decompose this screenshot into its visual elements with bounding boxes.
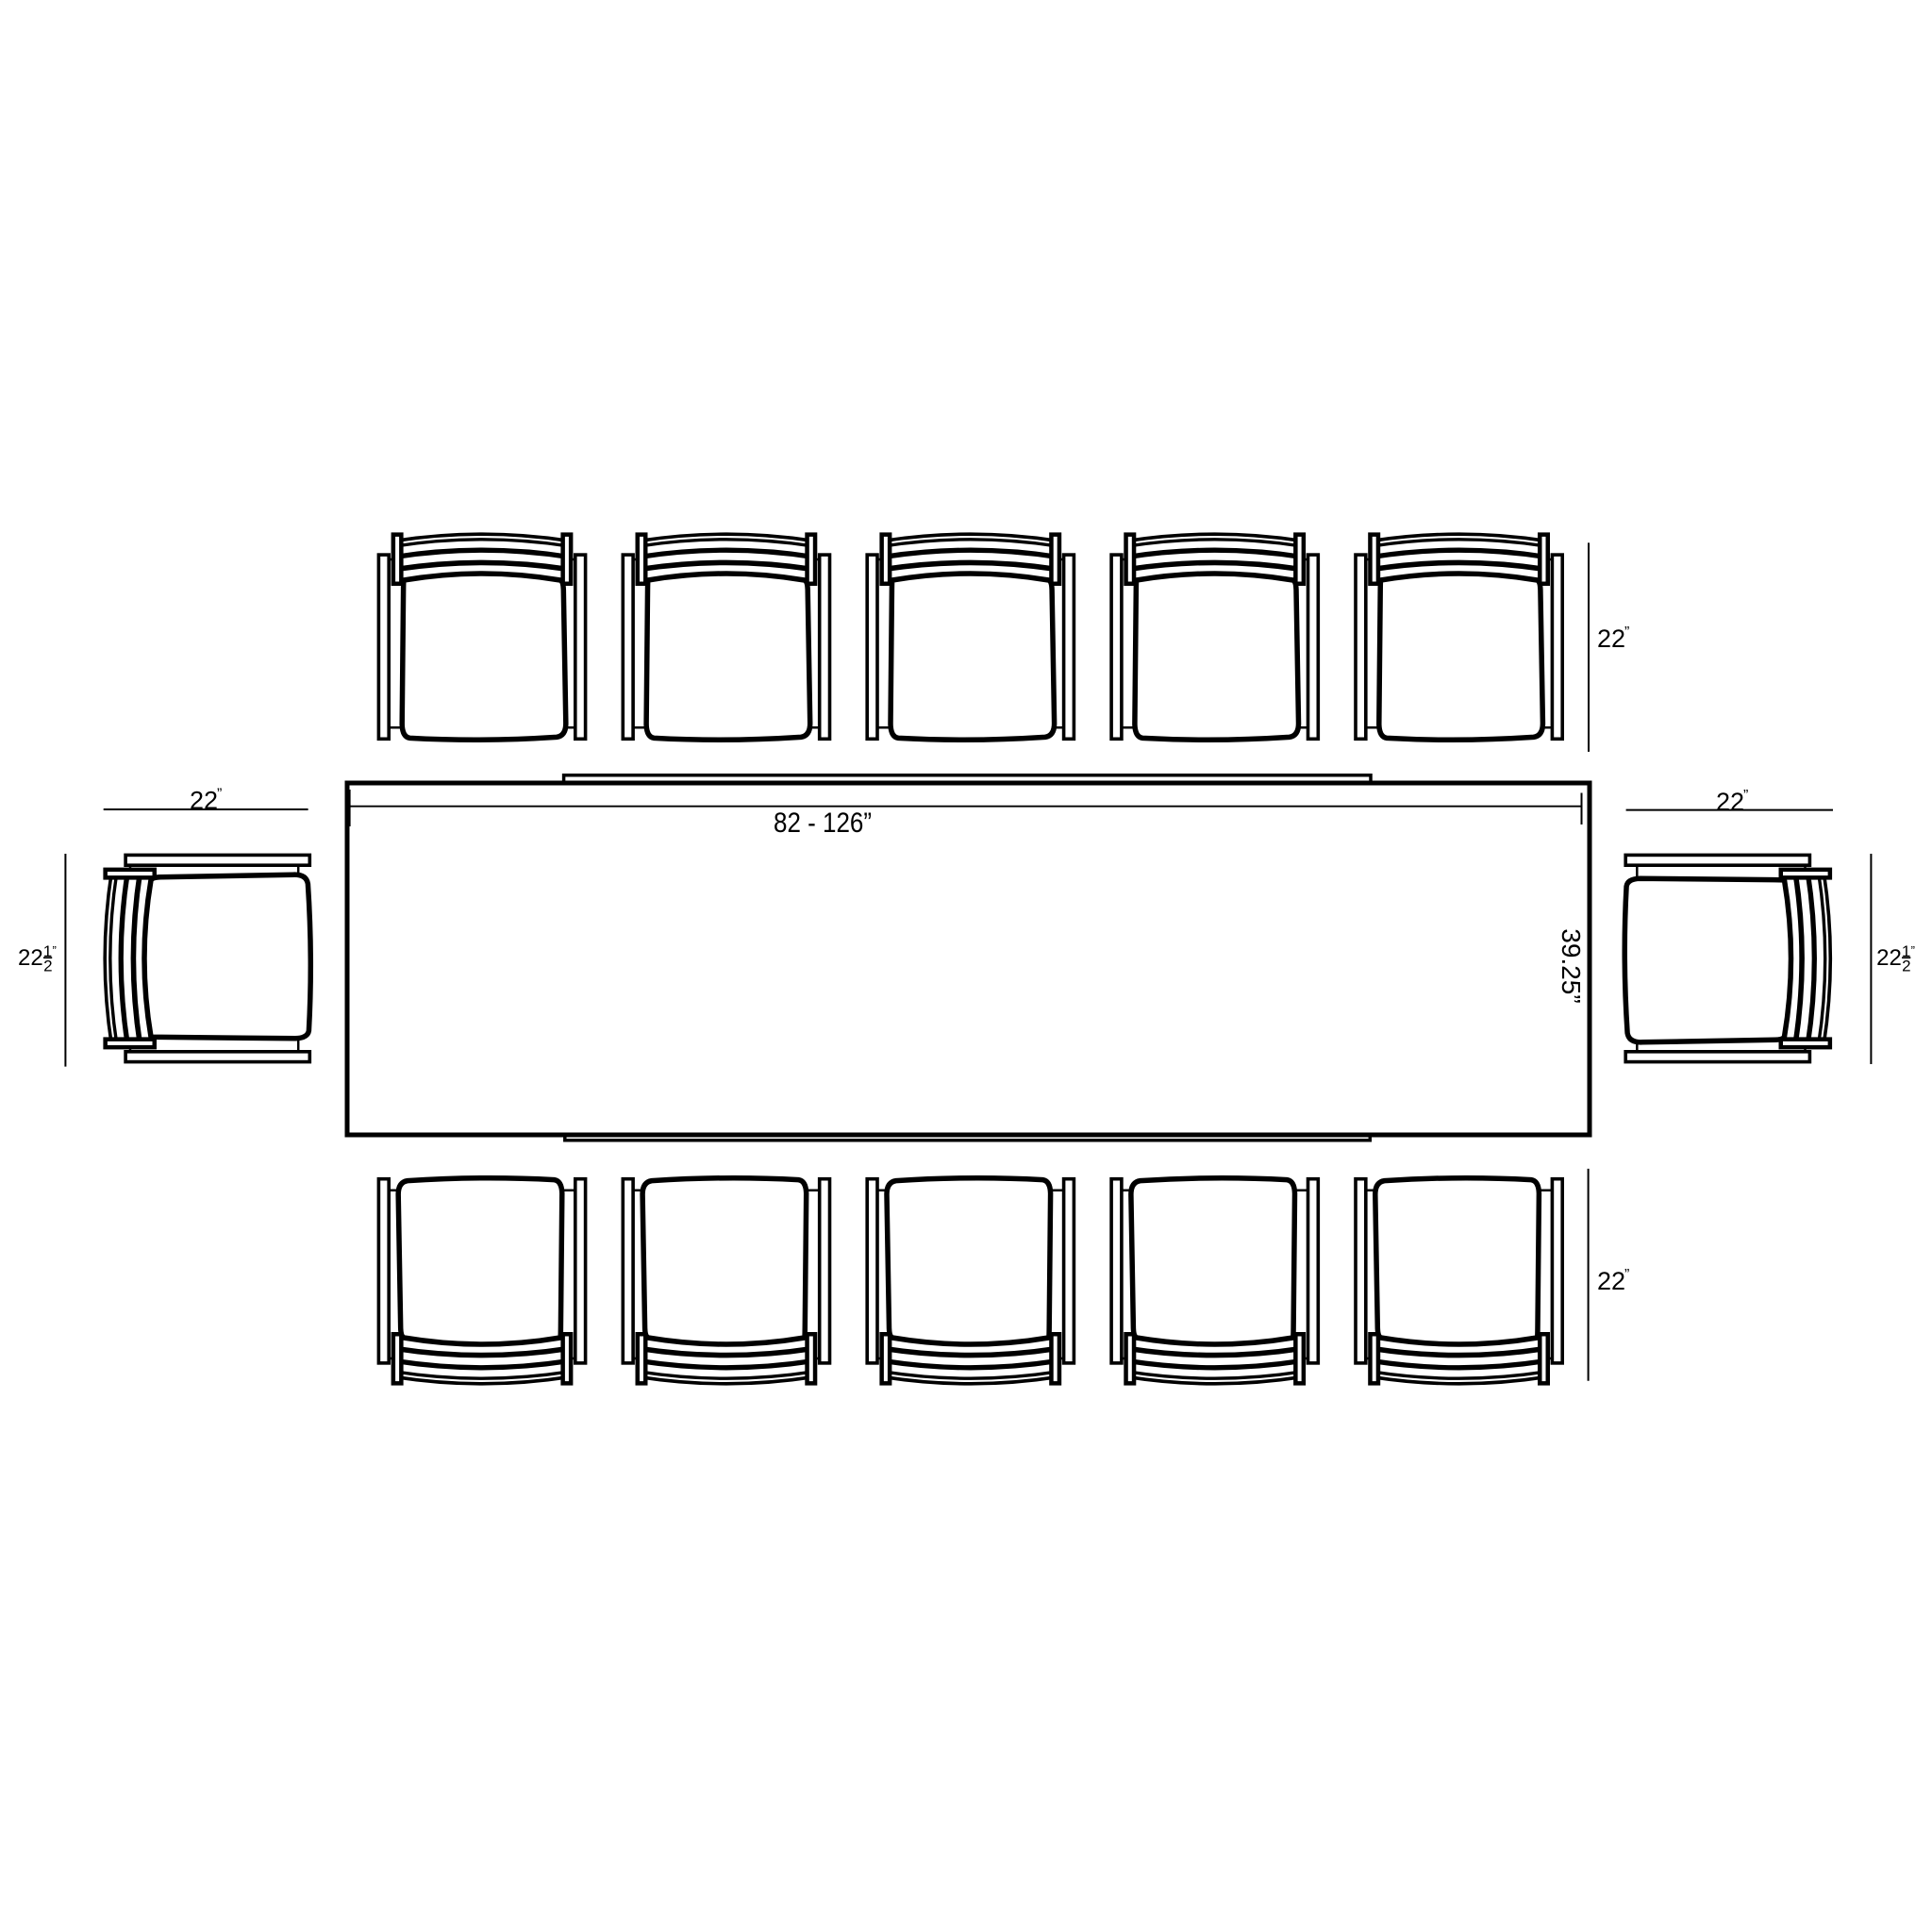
svg-text:22”: 22” <box>1597 625 1629 653</box>
svg-text:22: 22 <box>18 945 43 971</box>
svg-text:2: 2 <box>43 958 52 975</box>
svg-text:22”: 22” <box>1597 1267 1629 1295</box>
svg-text:82 - 126”: 82 - 126” <box>774 808 872 839</box>
svg-text:2: 2 <box>1902 958 1910 975</box>
svg-text:22”: 22” <box>190 787 222 815</box>
svg-text:”: ” <box>53 943 57 958</box>
svg-text:22”: 22” <box>1716 788 1748 816</box>
svg-text:22: 22 <box>1876 945 1902 971</box>
svg-text:”: ” <box>1911 943 1915 958</box>
svg-text:39.25”: 39.25” <box>1557 928 1586 1003</box>
